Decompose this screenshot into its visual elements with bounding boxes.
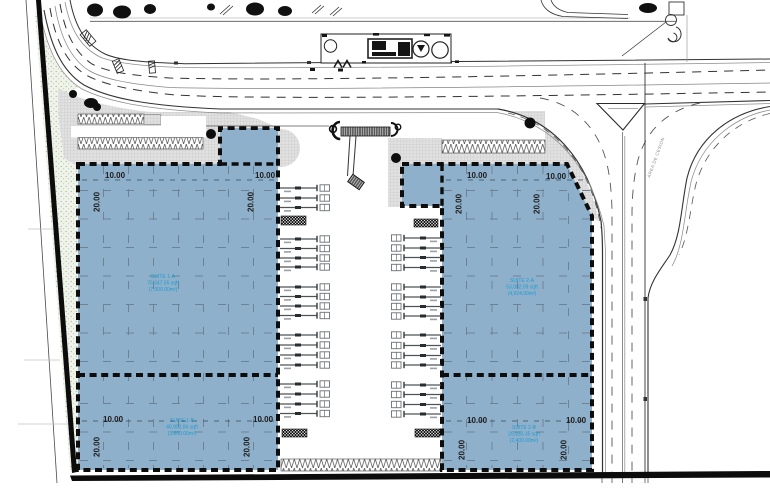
- svg-text:53,002.09 sqft: 53,002.09 sqft: [506, 285, 538, 291]
- svg-text:10.00: 10.00: [467, 171, 488, 180]
- svg-text:20.00: 20.00: [93, 436, 102, 457]
- svg-text:20.00: 20.00: [533, 193, 542, 214]
- svg-text:(2,400.00m²): (2,400.00m²): [510, 438, 539, 444]
- svg-text:20.00: 20.00: [458, 439, 467, 460]
- svg-text:(3,800.00m²): (3,800.00m²): [168, 431, 197, 437]
- svg-text:10.00: 10.00: [566, 416, 587, 425]
- svg-text:10.00: 10.00: [103, 415, 124, 424]
- svg-text:(7,000.00m²): (7,000.00m²): [149, 287, 178, 293]
- svg-text:SUITE 2-B: SUITE 2-B: [512, 425, 537, 431]
- svg-text:75,347.55 sqft: 75,347.55 sqft: [147, 281, 179, 287]
- svg-text:20.00: 20.00: [560, 439, 569, 460]
- svg-text:(4,924.00m²): (4,924.00m²): [508, 291, 537, 297]
- svg-text:SUITE 1-B: SUITE 1-B: [170, 418, 195, 424]
- svg-text:10.00: 10.00: [255, 171, 276, 180]
- svg-text:10.00: 10.00: [546, 172, 567, 181]
- svg-text:20.00: 20.00: [455, 193, 464, 214]
- svg-text:20.00: 20.00: [243, 436, 252, 457]
- svg-text:25,833.35 sqft: 25,833.35 sqft: [508, 432, 540, 438]
- svg-text:20.00: 20.00: [247, 191, 256, 212]
- svg-text:SUITE 2-A: SUITE 2-A: [510, 278, 535, 284]
- svg-text:20.00: 20.00: [93, 191, 102, 212]
- svg-text:10.00: 10.00: [253, 415, 274, 424]
- svg-text:SUITE 1-A: SUITE 1-A: [151, 274, 176, 280]
- svg-text:10.00: 10.00: [105, 171, 126, 180]
- svg-text:40,902.84 sqft: 40,902.84 sqft: [166, 425, 198, 431]
- svg-text:10.00: 10.00: [467, 416, 488, 425]
